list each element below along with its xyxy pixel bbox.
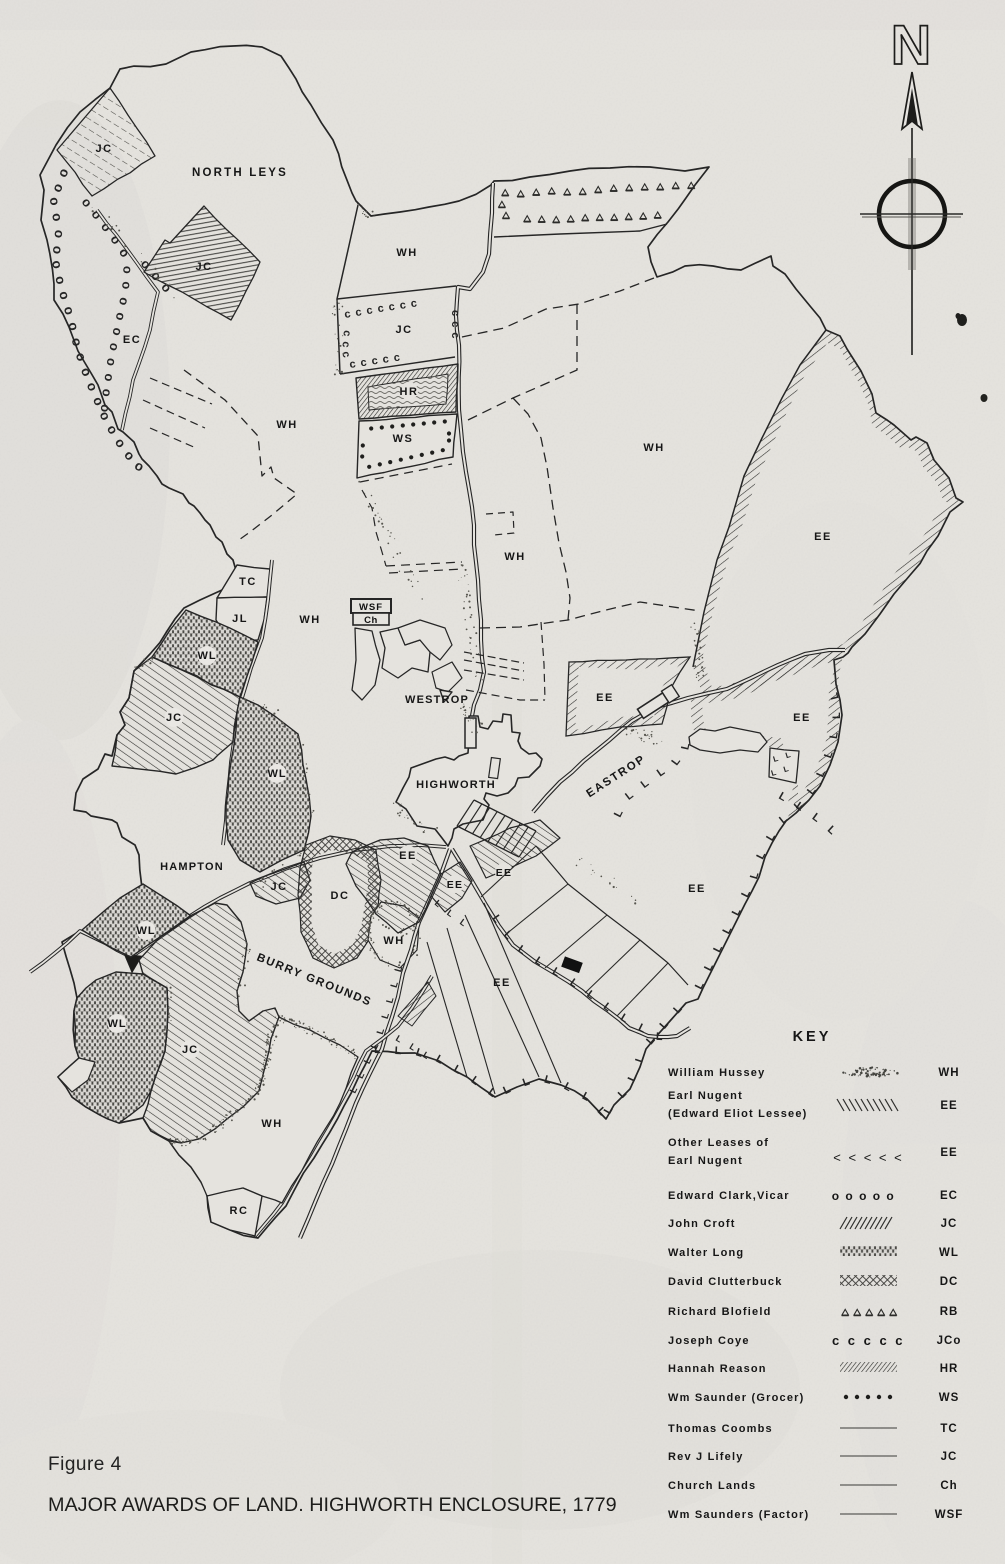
svg-text:Ch: Ch	[940, 1480, 957, 1492]
svg-text:JC: JC	[395, 324, 412, 336]
svg-text:Thomas Coombs: Thomas Coombs	[668, 1423, 773, 1435]
svg-text:JC: JC	[166, 712, 182, 724]
svg-text:EE: EE	[793, 712, 811, 724]
svg-text:WS: WS	[393, 433, 414, 445]
svg-text:c c c c c: c c c c c	[832, 1333, 905, 1348]
svg-text:WSF: WSF	[935, 1509, 964, 1521]
svg-text:Earl Nugent: Earl Nugent	[668, 1090, 743, 1102]
svg-text:EE: EE	[688, 883, 706, 895]
svg-text:WH: WH	[938, 1067, 959, 1079]
svg-text:RC: RC	[230, 1205, 249, 1217]
svg-text:WSF: WSF	[359, 602, 383, 613]
svg-text:Wm Saunders (Factor): Wm Saunders (Factor)	[668, 1509, 809, 1521]
svg-text:EE: EE	[399, 850, 417, 862]
svg-text:KEY: KEY	[793, 1029, 832, 1045]
svg-text:WS: WS	[939, 1392, 960, 1404]
svg-text:EE: EE	[596, 692, 614, 704]
svg-text:NORTH LEYS: NORTH LEYS	[192, 167, 288, 179]
svg-text:JC: JC	[941, 1218, 958, 1230]
svg-text:WL: WL	[107, 1018, 126, 1030]
svg-text:WH: WH	[643, 442, 664, 454]
svg-text:RB: RB	[940, 1306, 959, 1318]
svg-text:WL: WL	[136, 925, 155, 937]
svg-text:(Edward Eliot Lessee): (Edward Eliot Lessee)	[668, 1108, 808, 1120]
svg-text:Richard Blofield: Richard Blofield	[668, 1306, 772, 1318]
svg-text:Other Leases of: Other Leases of	[668, 1137, 769, 1149]
svg-text:WH: WH	[276, 419, 297, 431]
svg-text:c c c: c c c	[339, 330, 353, 360]
svg-text:William Hussey: William Hussey	[668, 1067, 765, 1079]
svg-text:WH: WH	[261, 1118, 282, 1130]
svg-text:JC: JC	[182, 1044, 198, 1056]
svg-text:David Clutterbuck: David Clutterbuck	[668, 1276, 783, 1288]
svg-text:Wm Saunder (Grocer): Wm Saunder (Grocer)	[668, 1392, 805, 1404]
svg-text:c c c: c c c	[449, 310, 461, 340]
svg-text:JC: JC	[941, 1451, 958, 1463]
svg-text:EE: EE	[814, 531, 832, 543]
svg-text:DC: DC	[940, 1276, 959, 1288]
svg-text:MAJOR AWARDS OF LAND. HIGHWORT: MAJOR AWARDS OF LAND. HIGHWORTH ENCLOSUR…	[48, 1494, 617, 1516]
svg-text:JC: JC	[95, 143, 112, 155]
svg-text:Figure 4: Figure 4	[48, 1454, 122, 1475]
svg-text:WH: WH	[383, 935, 404, 947]
svg-text:EC: EC	[123, 334, 141, 346]
svg-text:HAMPTON: HAMPTON	[160, 861, 224, 873]
svg-text:JC: JC	[195, 261, 212, 273]
svg-text:JL: JL	[232, 613, 248, 625]
svg-text:HR: HR	[940, 1363, 959, 1375]
svg-text:WH: WH	[504, 551, 525, 563]
svg-text:WESTROP: WESTROP	[405, 694, 469, 706]
svg-text:WL: WL	[939, 1247, 959, 1259]
svg-text:Rev J Lifely: Rev J Lifely	[668, 1451, 744, 1463]
svg-text:< < < < <: < < < < <	[833, 1150, 903, 1165]
svg-text:Hannah Reason: Hannah Reason	[668, 1363, 767, 1375]
svg-text:Ch: Ch	[364, 615, 378, 626]
svg-text:Walter Long: Walter Long	[668, 1247, 744, 1259]
svg-text:JCo: JCo	[937, 1335, 962, 1347]
svg-text:WL: WL	[267, 768, 286, 780]
svg-text:Church Lands: Church Lands	[668, 1480, 756, 1492]
svg-text:WL: WL	[197, 650, 216, 662]
svg-text:TC: TC	[239, 576, 257, 588]
svg-text:N: N	[891, 13, 931, 76]
svg-text:Edward Clark,Vicar: Edward Clark,Vicar	[668, 1190, 790, 1202]
svg-text:HR: HR	[400, 386, 419, 398]
svg-text:EE: EE	[447, 879, 463, 891]
svg-text:Earl Nugent: Earl Nugent	[668, 1155, 743, 1167]
svg-text:EE: EE	[940, 1100, 957, 1112]
svg-text:o o o o o: o o o o o	[832, 1189, 896, 1203]
svg-text:DC: DC	[331, 890, 350, 902]
svg-text:John Croft: John Croft	[668, 1218, 736, 1230]
svg-text:EE: EE	[493, 977, 511, 989]
svg-text:JC: JC	[270, 881, 287, 893]
svg-text:Joseph Coye: Joseph Coye	[668, 1335, 750, 1347]
svg-text:WH: WH	[396, 247, 417, 259]
svg-text:WH: WH	[299, 614, 320, 626]
svg-text:TC: TC	[940, 1423, 957, 1435]
svg-text:EC: EC	[940, 1190, 958, 1202]
svg-text:EE: EE	[496, 867, 512, 879]
svg-text:HIGHWORTH: HIGHWORTH	[416, 779, 496, 791]
svg-text:EE: EE	[940, 1147, 957, 1159]
